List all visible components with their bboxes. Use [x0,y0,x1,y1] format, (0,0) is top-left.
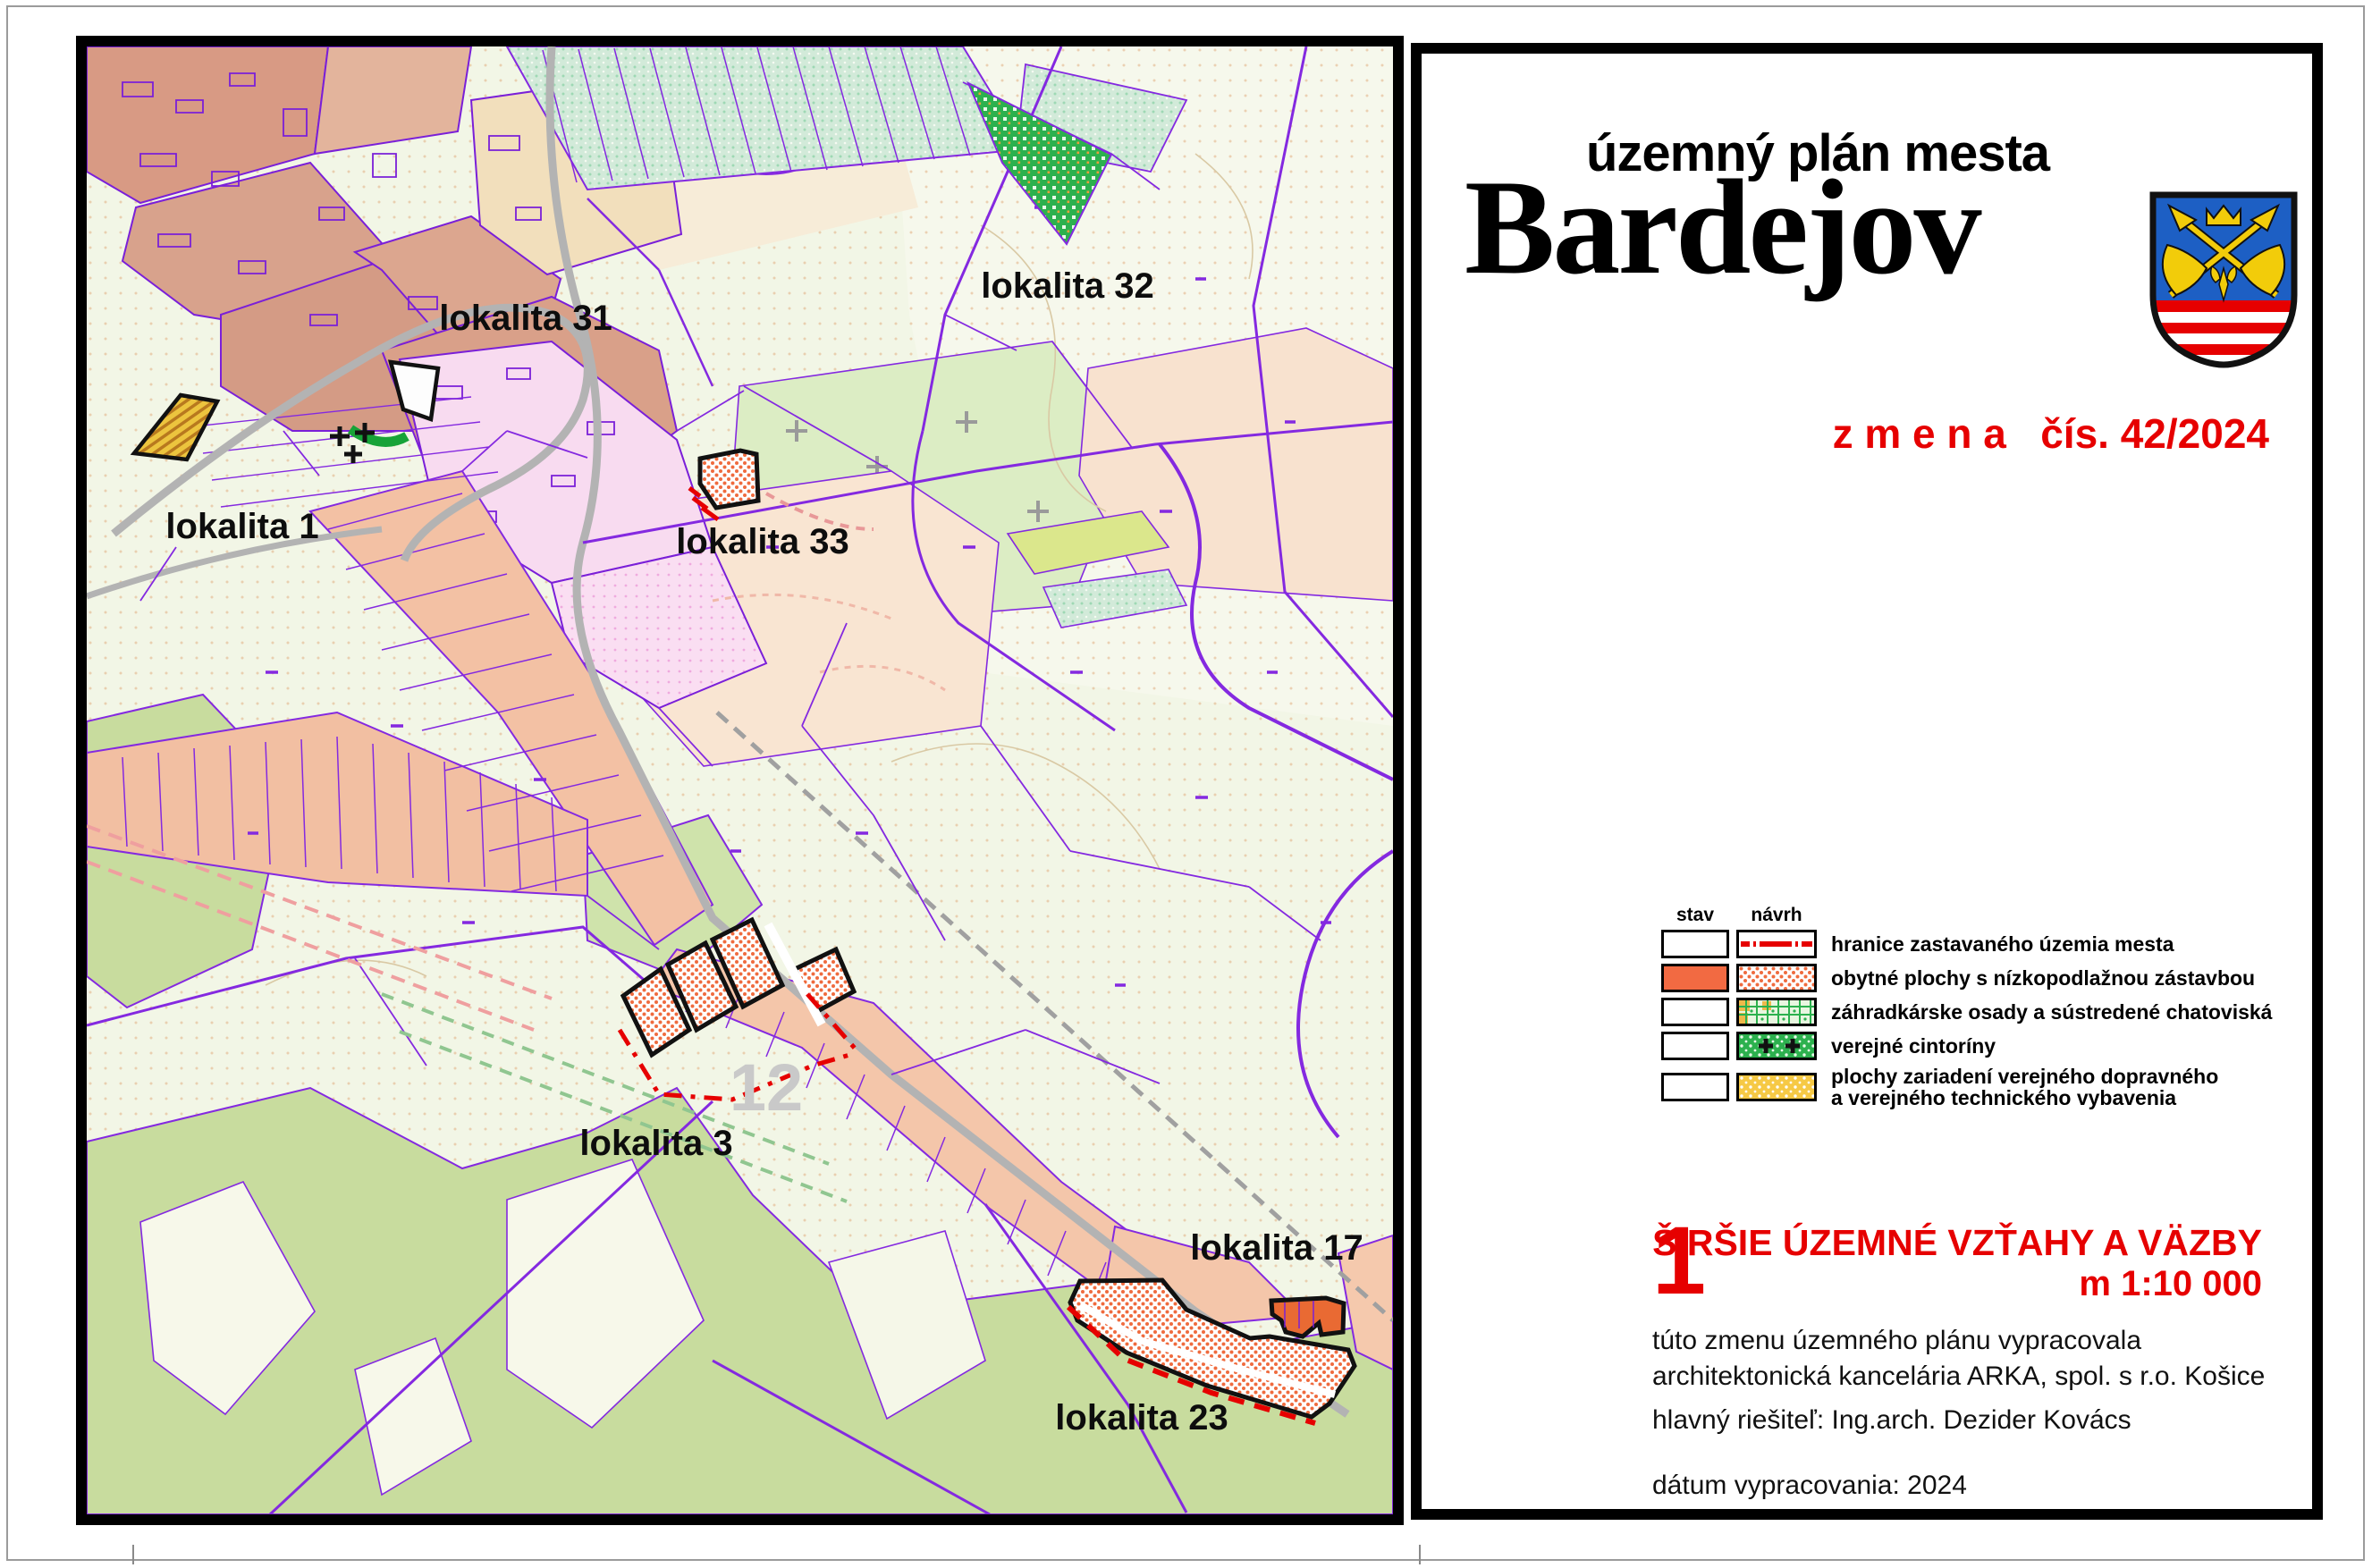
label-lokalita-33: lokalita 33 [676,522,848,561]
map-scale: m 1:10 000 [1652,1263,2262,1304]
registration-tick [1419,1545,1421,1564]
legend-label: záhradkárske osady a sústredené chatovis… [1831,1001,2272,1023]
swatch-stav-empty [1661,998,1729,1026]
sector-watermark: 12 [730,1050,803,1125]
city-name: Bardejov [1465,159,1979,295]
swatch-navrh-boundary-dashed [1736,930,1817,958]
coat-of-arms [2144,190,2303,368]
legend-column-navrh: návrh [1736,905,1817,926]
swatch-navrh-garden-grid [1736,998,1817,1026]
legend-label: hranice zastavaného územia mesta [1831,933,2174,955]
title-block: územný plán mesta Bardejov [1411,43,2323,1520]
lokalita-33-area [700,451,758,508]
preparation-date: dátum vypracovania: 2024 [1652,1471,1967,1501]
legend-row: záhradkárske osady a sústredené chatovis… [1661,998,2272,1026]
map-canvas: 12 lokalita 31 lokalita 32 lokalita 1 lo… [87,46,1393,1514]
legend-row: obytné plochy s nízkopodlažnou zástavbou [1661,964,2272,992]
label-lokalita-3: lokalita 3 [579,1124,732,1163]
swatch-stav-empty [1661,1032,1729,1060]
label-lokalita-32: lokalita 32 [981,266,1153,306]
registration-tick [132,1545,134,1564]
legend-label: plochy zariadení verejného dopravného a … [1831,1066,2218,1109]
swatch-navrh-transport [1736,1073,1817,1101]
label-lokalita-17: lokalita 17 [1190,1228,1363,1268]
swatch-navrh-cemetery [1736,1032,1817,1060]
swatch-stav-residential [1661,964,1729,992]
prepared-by: túto zmenu územného plánu vypracovala ar… [1652,1323,2265,1394]
legend-label: obytné plochy s nízkopodlažnou zástavbou [1831,967,2255,989]
legend-row: plochy zariadení verejného dopravného a … [1661,1066,2272,1109]
legend-column-stav: stav [1661,905,1729,926]
legend-row: verejné cintoríny [1661,1032,2272,1060]
legend-label: verejné cintoríny [1831,1035,1996,1057]
label-lokalita-23: lokalita 23 [1055,1398,1228,1437]
swatch-navrh-residential-dots [1736,964,1817,992]
change-number: z m e n a čís. 42/2024 [1833,409,2269,458]
sheet-title: ŠIRŠIE ÚZEMNÉ VZŤAHY A VÄZBY [1652,1223,2262,1263]
map-frame: 12 lokalita 31 lokalita 32 lokalita 1 lo… [76,36,1404,1525]
legend-row: hranice zastavaného územia mesta [1661,930,2272,958]
chief-designer: hlavný riešiteľ: Ing.arch. Dezider Kovác… [1652,1405,2131,1436]
label-lokalita-1: lokalita 1 [165,507,318,546]
swatch-stav-empty [1661,1073,1729,1101]
label-lokalita-31: lokalita 31 [439,299,612,338]
swatch-stav-empty [1661,930,1729,958]
map-legend: stav návrh hranice zastavaného územia me… [1661,905,2272,1114]
